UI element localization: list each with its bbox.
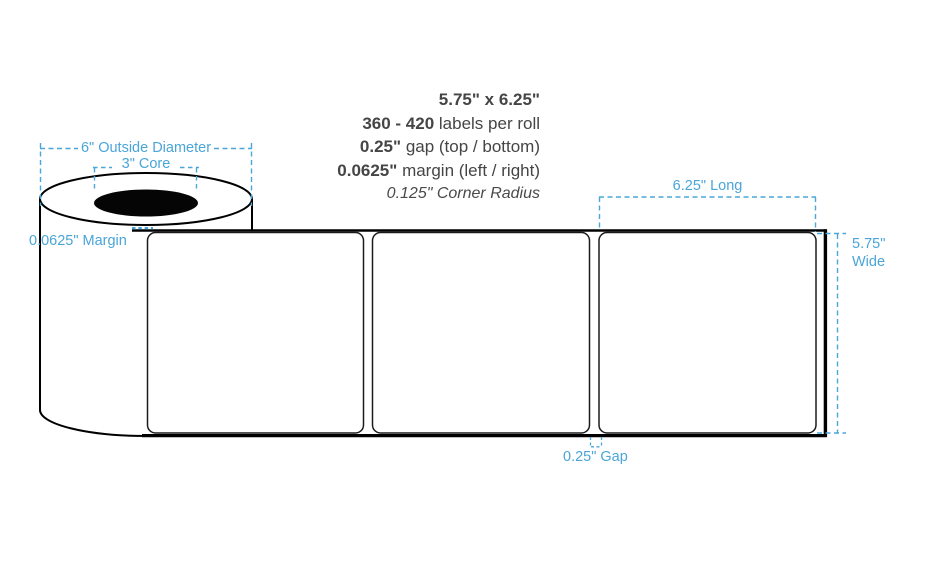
spec-margin-label: margin (left / right) — [402, 161, 540, 180]
spec-gap-value: 0.25" — [360, 137, 401, 156]
label-roll-spec-diagram: 5.75" x 6.25" 360 - 420 labels per roll … — [0, 0, 944, 585]
gap-label: 0.25" Gap — [563, 449, 628, 465]
label-1 — [148, 233, 364, 434]
spec-gap-label: gap (top / bottom) — [406, 137, 540, 156]
label-width-word: Wide — [852, 254, 885, 272]
spec-margin: 0.0625" margin (left / right) — [220, 159, 540, 183]
spec-corner-radius: 0.125" Corner Radius — [220, 182, 540, 206]
spec-count-label: labels per roll — [439, 114, 540, 133]
label-2 — [373, 233, 590, 434]
spec-size: 5.75" x 6.25" — [220, 88, 540, 112]
spec-margin-value: 0.0625" — [337, 161, 397, 180]
label-width-value: 5.75" — [852, 236, 885, 254]
spec-gap: 0.25" gap (top / bottom) — [220, 135, 540, 159]
label-length-dimension-lines — [599, 197, 816, 232]
gap-dimension-lines — [591, 437, 602, 447]
spec-count: 360 - 420 labels per roll — [220, 112, 540, 136]
outside-diameter-label: 6" Outside Diameter — [38, 140, 254, 156]
label-length-label: 6.25" Long — [599, 178, 816, 194]
label-3 — [599, 233, 816, 434]
spec-text-block: 5.75" x 6.25" 360 - 420 labels per roll … — [220, 88, 540, 206]
label-width-label: 5.75" Wide — [852, 236, 885, 271]
side-margin-label: 0.0625" Margin — [29, 233, 127, 249]
spec-count-value: 360 - 420 — [362, 114, 434, 133]
core-label: 3" Core — [38, 156, 254, 172]
label-width-dimension-lines — [817, 234, 846, 434]
roll-core-hole — [94, 190, 198, 217]
